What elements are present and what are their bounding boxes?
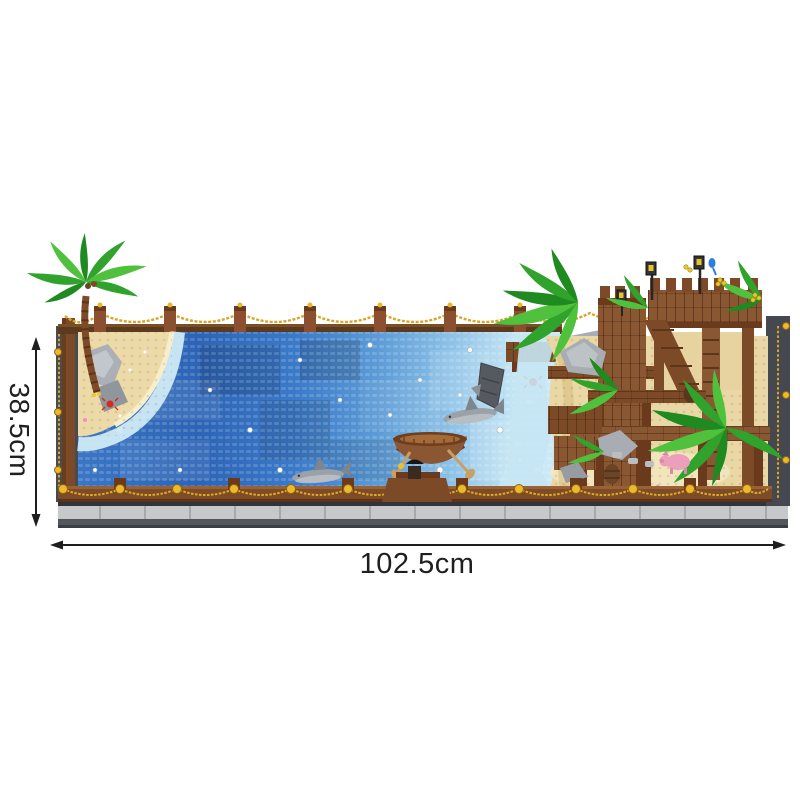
right-frame: [766, 316, 790, 506]
left-frame: [55, 318, 81, 502]
diorama-illustration: [0, 0, 800, 800]
display-base: [58, 498, 788, 528]
palm-canopy: [26, 233, 148, 305]
product-dimension-figure: 38.5cm 102.5cm: [0, 0, 800, 800]
width-dimension-label: 102.5cm: [317, 548, 517, 580]
parrot: [709, 258, 717, 275]
sandy-beach-left: [26, 233, 178, 444]
height-dimension-label: 38.5cm: [4, 375, 34, 485]
